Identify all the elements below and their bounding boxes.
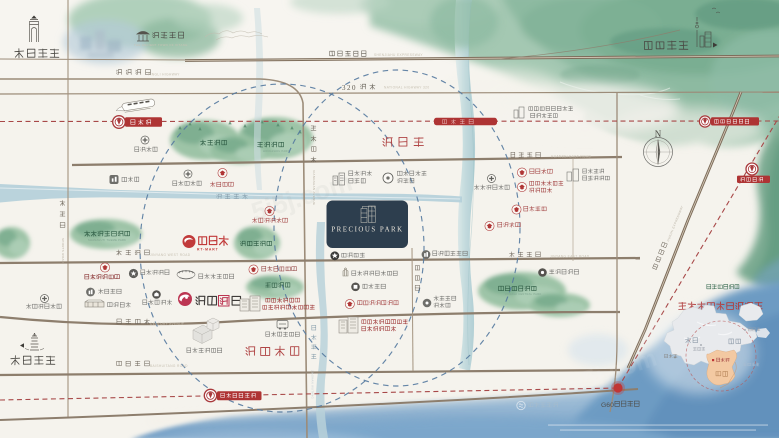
svg-text:RT-MART: RT-MART bbox=[197, 248, 219, 252]
svg-text:NATIONAL HIGHWAY 320: NATIONAL HIGHWAY 320 bbox=[384, 86, 430, 90]
svg-text:JINGKAI CENTRAL PARK: JINGKAI CENTRAL PARK bbox=[505, 292, 541, 296]
svg-text:PINGLI HIGHWAY: PINGLI HIGHWAY bbox=[148, 73, 180, 77]
svg-text:SHANZHUTI THEME PARK: SHANZHUTI THEME PARK bbox=[88, 238, 126, 242]
svg-text:HUANBEI EAST ROAD: HUANBEI EAST ROAD bbox=[551, 155, 592, 159]
svg-text:N: N bbox=[655, 129, 662, 139]
svg-text:G60: G60 bbox=[601, 402, 614, 409]
svg-text:THE ANCIENT TOWN OF XITANG: THE ANCIENT TOWN OF XITANG bbox=[134, 43, 188, 47]
svg-text:CENTURY AVENUE: CENTURY AVENUE bbox=[150, 322, 184, 326]
svg-text:320: 320 bbox=[342, 84, 357, 92]
svg-text:SPORTS ROAD: SPORTS ROAD bbox=[61, 238, 65, 264]
svg-text:HONGZHOU PARK: HONGZHOU PARK bbox=[263, 149, 290, 153]
svg-text:SHENJIAHU EXPRESSWAY: SHENJIAHU EXPRESSWAY bbox=[374, 53, 423, 57]
svg-text:JIASHAN WUTANG: JIASHAN WUTANG bbox=[311, 370, 315, 399]
svg-text:JINYANG WEST ROAD: JINYANG WEST ROAD bbox=[150, 253, 191, 257]
svg-text:BAISHUITANG ROAD: BAISHUITANG ROAD bbox=[150, 364, 188, 368]
svg-text:PRECIOUS PARK: PRECIOUS PARK bbox=[331, 227, 403, 234]
svg-text:JINYANG EAST ROAD: JINYANG EAST ROAD bbox=[550, 255, 590, 259]
